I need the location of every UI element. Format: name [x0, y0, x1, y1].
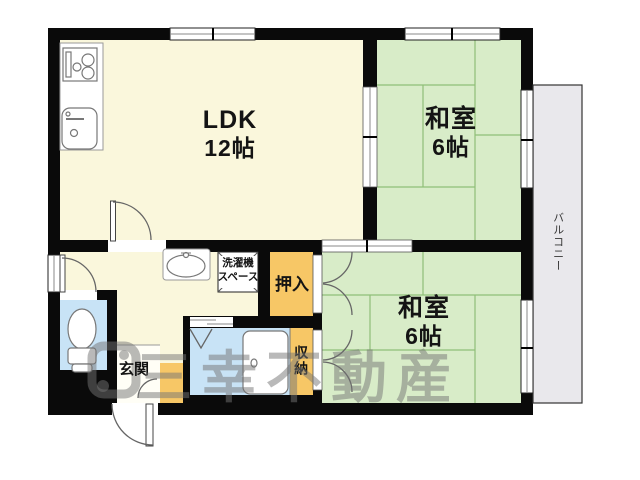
- hallway-mid: [117, 290, 258, 316]
- window-right-washitsu-bottom: [521, 300, 533, 393]
- fusuma-between-washitsu: [322, 240, 412, 252]
- wall-toilet-right: [107, 290, 117, 370]
- ldk-size: 12帖: [150, 135, 310, 161]
- label-oshiire: 押入: [268, 275, 316, 295]
- window-left-toilet: [48, 255, 60, 292]
- washbasin-icon: [163, 249, 210, 280]
- washitsu-top-name: 和室: [391, 105, 511, 134]
- washitsu-bottom-name: 和室: [364, 294, 484, 323]
- label-washitsu-top: 和室 6帖: [391, 105, 511, 160]
- door-bathroom: [190, 317, 233, 327]
- label-laundry-space: 洗濯機 スペース: [215, 256, 261, 284]
- stove-icon: [63, 48, 97, 81]
- washitsu-top-size: 6帖: [391, 134, 511, 160]
- window-right-washitsu-top: [521, 90, 533, 188]
- kitchen-sink-icon: [62, 108, 97, 149]
- label-balcony: バルコニー: [551, 212, 564, 272]
- label-ldk: LDK 12帖: [150, 106, 310, 161]
- window-top-ldk: [170, 28, 255, 40]
- kitchen-counter: [60, 43, 103, 150]
- laundry-line1: 洗濯機: [215, 256, 261, 270]
- fusuma-ldk-washitsu: [363, 87, 377, 187]
- ldk-name: LDK: [150, 106, 310, 135]
- window-top-washitsu: [405, 28, 500, 40]
- floorplan: LDK 12帖 和室 6帖 和室 6帖 押入 収納 玄関 洗濯機 スペース バル…: [0, 0, 640, 480]
- wall-between-washitsu: [412, 240, 521, 252]
- watermark-text: 三幸不動産: [136, 333, 461, 414]
- laundry-line2: スペース: [215, 270, 261, 284]
- wall-left: [48, 28, 60, 415]
